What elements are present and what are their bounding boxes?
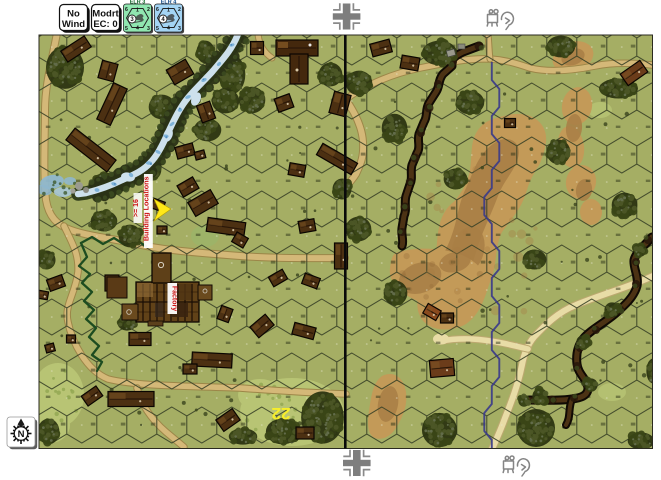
svg-text:EC: 0: EC: 0 (93, 19, 117, 30)
svg-text:6: 6 (125, 7, 128, 13)
svg-text:Factory: Factory (171, 286, 178, 311)
svg-text:4: 4 (167, 26, 170, 32)
svg-text:6: 6 (156, 7, 159, 13)
svg-text:5: 5 (156, 26, 159, 32)
svg-text:4: 4 (136, 26, 139, 32)
svg-text:N: N (18, 429, 25, 440)
svg-text:Wind: Wind (62, 19, 85, 30)
svg-text:>= 16: >= 16 (133, 199, 140, 217)
svg-text:No: No (67, 9, 80, 20)
svg-text:ELR 4: ELR 4 (161, 0, 178, 6)
svg-text:1: 1 (136, 8, 139, 14)
svg-text:Building Locations: Building Locations (141, 176, 150, 241)
svg-text:3: 3 (178, 26, 181, 32)
svg-text:3: 3 (147, 26, 150, 32)
svg-text:5: 5 (125, 26, 128, 32)
svg-text:22: 22 (272, 404, 291, 423)
svg-text:Modrt: Modrt (92, 9, 119, 20)
svg-text:ELR 3: ELR 3 (130, 0, 146, 6)
svg-text:1: 1 (167, 8, 170, 14)
svg-text:2: 2 (147, 7, 150, 13)
svg-text:2: 2 (178, 7, 181, 13)
